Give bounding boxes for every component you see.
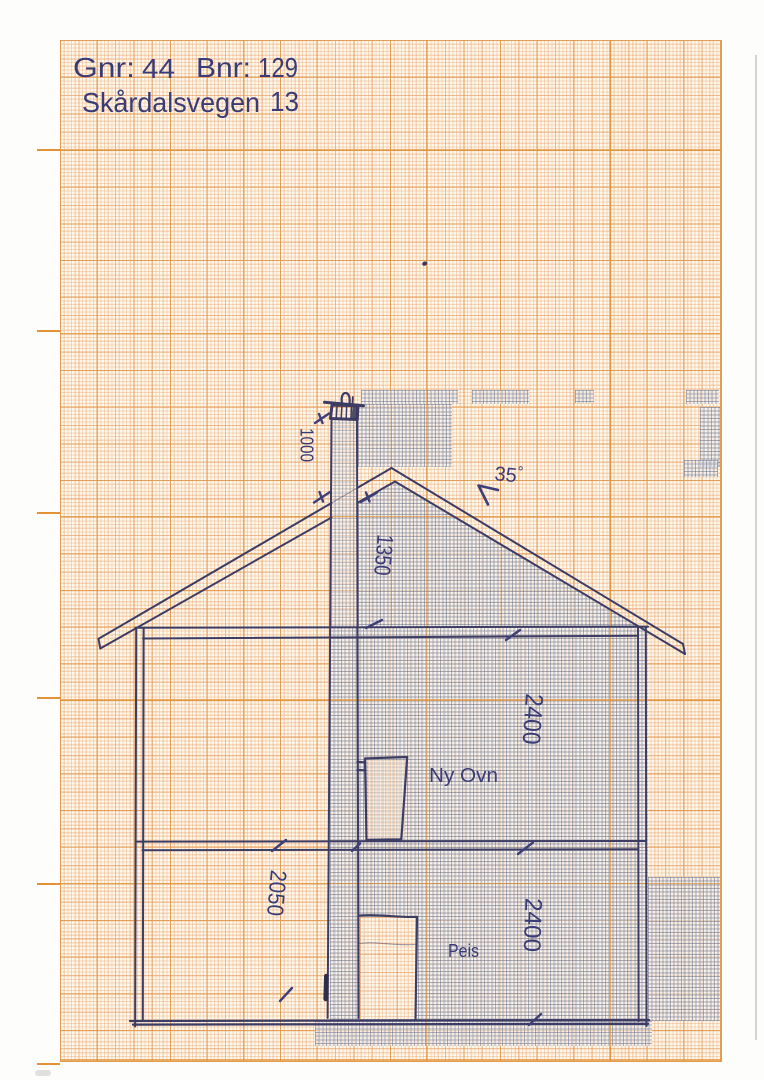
svg-text:129: 129 — [258, 52, 298, 83]
svg-text:Ny Ovn: Ny Ovn — [429, 765, 498, 787]
svg-text:2400: 2400 — [518, 898, 547, 953]
svg-text:44: 44 — [142, 53, 175, 84]
svg-text:1000: 1000 — [296, 428, 316, 462]
svg-text:Skårdalsvegen: Skårdalsvegen — [82, 87, 260, 118]
svg-text:13: 13 — [270, 86, 299, 117]
svg-text:Gnr:: Gnr: — [73, 52, 135, 83]
svg-text:1350: 1350 — [369, 534, 398, 577]
svg-text:Peis: Peis — [448, 941, 479, 961]
svg-text:2400: 2400 — [517, 693, 548, 746]
svg-text:2050: 2050 — [262, 869, 292, 917]
svg-text:35°: 35° — [493, 461, 524, 488]
svg-text:Bnr:: Bnr: — [196, 52, 251, 83]
